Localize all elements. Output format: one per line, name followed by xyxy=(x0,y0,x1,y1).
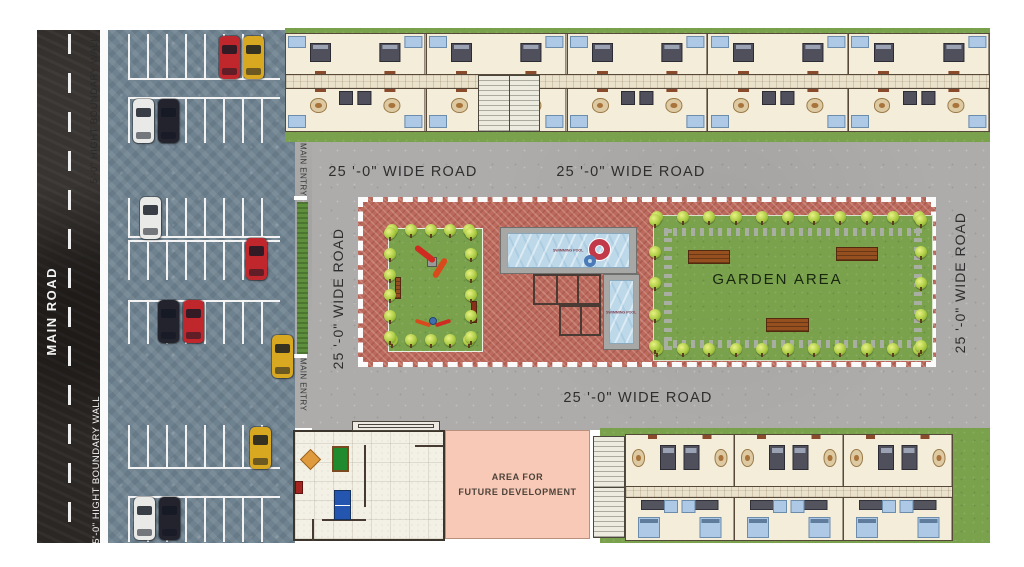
apartment-unit xyxy=(898,435,953,486)
playground-bench xyxy=(471,301,477,323)
room-divider xyxy=(556,276,558,303)
wide-road-label-top-left: 25 '-0" WIDE ROAD xyxy=(328,164,477,180)
apartment-unit xyxy=(898,498,953,540)
room-divider xyxy=(580,307,582,334)
changing-rooms-lower xyxy=(559,305,601,336)
tt-net-line xyxy=(335,505,350,506)
garden-path xyxy=(664,340,924,348)
slide-chute-icon xyxy=(414,244,437,264)
apartment-unit xyxy=(848,89,918,131)
top-housing-row-lower xyxy=(285,88,990,132)
swimming-pool-small-label: SWIMMING POOL xyxy=(606,310,636,314)
entry-hedge xyxy=(297,202,308,354)
top-housing-row-upper xyxy=(285,33,990,75)
changing-rooms xyxy=(533,274,601,305)
room-divider xyxy=(577,276,579,303)
future-development-label: AREA FOR FUTURE DEVELOPMENT xyxy=(458,470,576,499)
table-tennis-icon xyxy=(334,490,351,520)
main-entry-label-bottom: MAIN ENTRY xyxy=(299,358,308,411)
top-housing-staircase xyxy=(478,75,540,132)
apartment-unit xyxy=(789,498,844,540)
equipment-icon xyxy=(295,481,303,494)
games-table-icon xyxy=(300,449,321,470)
swimming-pool-main-label: SWIMMING POOL xyxy=(553,249,583,253)
bottom-housing-row-lower xyxy=(625,497,953,541)
boundary-wall-label-top: 5'-0" HIGHT BOUNDARY WALL xyxy=(89,36,100,184)
swimming-pool-main: SWIMMING POOL xyxy=(507,233,630,268)
apartment-unit xyxy=(680,435,735,486)
top-housing-corridor xyxy=(285,75,990,88)
apartment-unit xyxy=(286,34,355,74)
entry-gate-post-bottom xyxy=(294,354,307,358)
apartment-unit xyxy=(355,89,425,131)
future-line2: FUTURE DEVELOPMENT xyxy=(458,485,576,499)
apartment-unit xyxy=(734,498,789,540)
bottom-housing-row-upper xyxy=(625,434,953,487)
apartment-unit xyxy=(778,34,848,74)
apartment-unit xyxy=(637,34,707,74)
apartment-unit xyxy=(734,435,789,486)
playground xyxy=(388,228,483,352)
apartment-unit xyxy=(496,34,566,74)
apartment-unit xyxy=(707,89,777,131)
apartment-unit xyxy=(626,498,680,540)
billiards-table-icon xyxy=(332,446,349,472)
stair-divider xyxy=(594,487,624,488)
stair-divider xyxy=(509,76,510,131)
swimming-pool-small: SWIMMING POOL xyxy=(609,280,634,344)
apartment-unit xyxy=(680,498,735,540)
garden-path xyxy=(664,228,672,350)
garden-path xyxy=(664,228,924,236)
apartment-unit xyxy=(843,498,898,540)
seesaw-icon xyxy=(435,319,451,328)
apartment-unit xyxy=(789,435,844,486)
seesaw-pivot xyxy=(429,317,437,325)
bottom-housing-staircase xyxy=(593,436,625,538)
clubhouse-wall xyxy=(312,519,314,541)
apartment-unit xyxy=(286,89,355,131)
main-entry-label-top: MAIN ENTRY xyxy=(299,143,308,196)
wide-road-label-right: 25 '-0" WIDE ROAD xyxy=(952,212,968,353)
apartment-unit xyxy=(637,89,707,131)
main-road-label: MAIN ROAD xyxy=(44,267,59,356)
apartment-unit xyxy=(848,34,918,74)
apartment-unit xyxy=(355,34,425,74)
clubhouse-steps xyxy=(352,421,440,431)
garden-area-label: GARDEN AREA xyxy=(712,271,842,288)
clubhouse xyxy=(293,430,445,541)
boundary-wall-label-bottom: 5'-0" HIGHT BOUNDARY WALL xyxy=(91,396,102,544)
apartment-unit xyxy=(778,89,848,131)
garden-path xyxy=(914,228,922,350)
apartment-unit xyxy=(919,89,989,131)
apartment-unit xyxy=(626,435,680,486)
apartment-unit xyxy=(567,34,637,74)
apartment-unit xyxy=(707,34,777,74)
road-centerline xyxy=(68,34,71,539)
parking-lot xyxy=(108,30,295,543)
apartment-unit xyxy=(567,89,637,131)
clubhouse-wall xyxy=(415,445,443,447)
apartment-unit xyxy=(843,435,898,486)
bottom-housing-corridor xyxy=(625,487,953,497)
future-development-area: AREA FOR FUTURE DEVELOPMENT xyxy=(445,430,590,539)
wide-road-label-top-right: 25 '-0" WIDE ROAD xyxy=(556,164,705,180)
site-plan: SWIMMING POOL SWIMMING POOL xyxy=(0,0,1024,567)
clubhouse-wall xyxy=(364,445,366,507)
wide-road-label-bottom: 25 '-0" WIDE ROAD xyxy=(563,390,712,406)
apartment-unit xyxy=(426,34,496,74)
apartment-unit xyxy=(919,34,989,74)
step-inner xyxy=(358,424,434,428)
swim-ring-small-icon xyxy=(584,255,596,267)
future-line1: AREA FOR xyxy=(458,470,576,484)
wide-road-label-left: 25 '-0" WIDE ROAD xyxy=(330,228,346,369)
playground-bench xyxy=(395,277,401,299)
